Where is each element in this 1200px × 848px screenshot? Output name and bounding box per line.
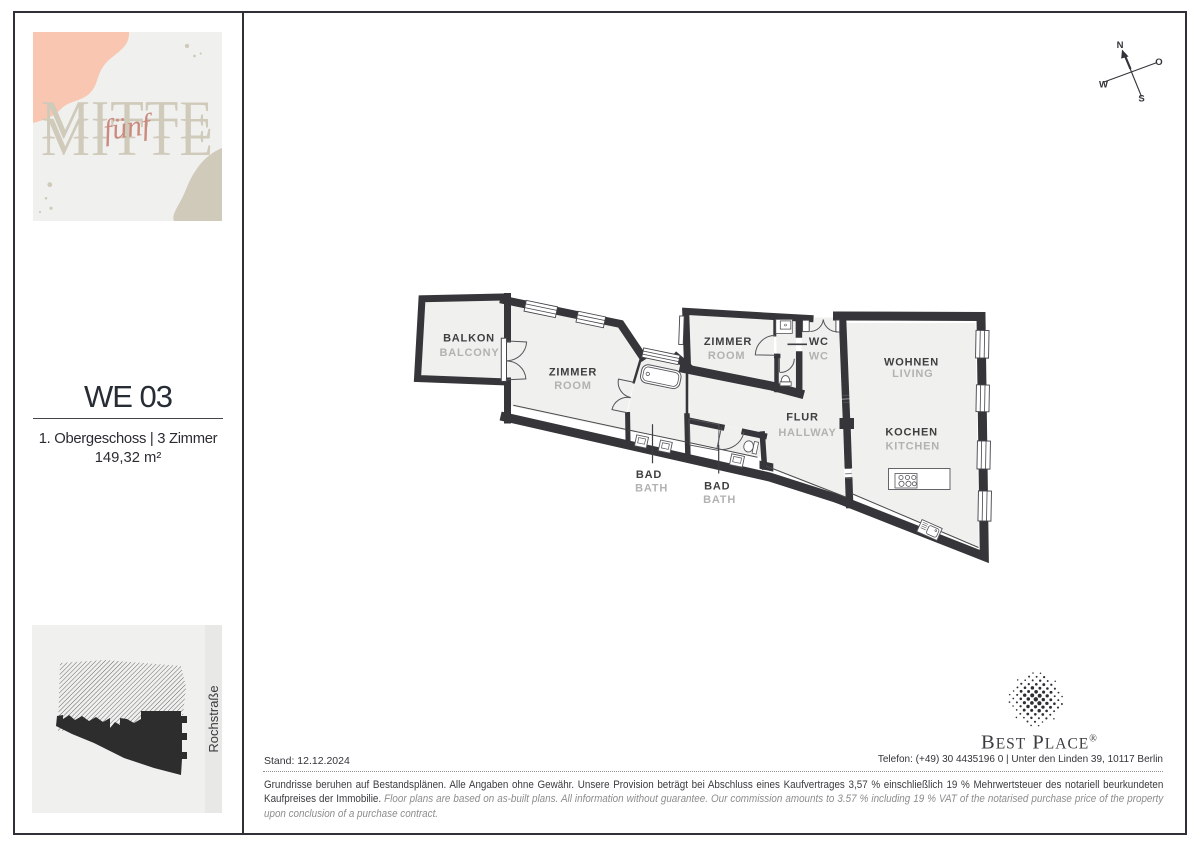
svg-text:WC: WC: [809, 350, 829, 362]
svg-text:LIVING: LIVING: [892, 368, 933, 380]
svg-text:FLUR: FLUR: [786, 412, 819, 424]
svg-text:WOHNEN: WOHNEN: [884, 356, 939, 368]
svg-text:ROOM: ROOM: [554, 380, 591, 392]
svg-text:BALCONY: BALCONY: [440, 347, 500, 359]
svg-text:ROOM: ROOM: [708, 350, 745, 362]
svg-text:KOCHEN: KOCHEN: [885, 427, 937, 439]
svg-text:ZIMMER: ZIMMER: [704, 336, 752, 348]
svg-text:BATH: BATH: [703, 494, 736, 506]
svg-text:BAD: BAD: [704, 481, 730, 493]
svg-text:BAD: BAD: [636, 469, 662, 481]
svg-text:WC: WC: [809, 336, 829, 348]
svg-text:ZIMMER: ZIMMER: [549, 367, 597, 379]
svg-text:HALLWAY: HALLWAY: [778, 427, 836, 439]
svg-text:BALKON: BALKON: [443, 333, 495, 345]
svg-text:BEST PLACE®: BEST PLACE®: [981, 732, 1098, 754]
svg-text:BATH: BATH: [635, 482, 668, 494]
svg-text:KITCHEN: KITCHEN: [886, 441, 941, 453]
